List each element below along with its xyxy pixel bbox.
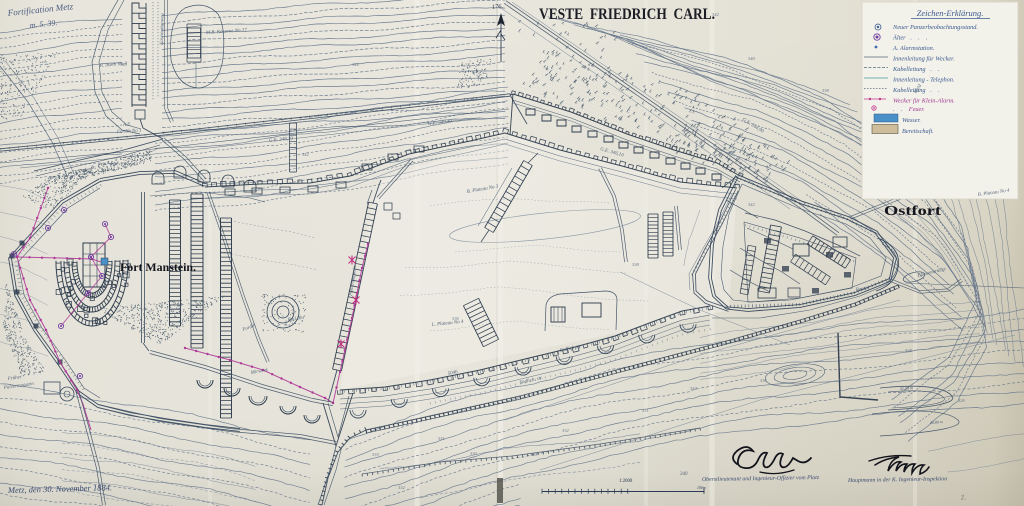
svg-text:336: 336 [452, 316, 460, 321]
svg-text:A. Alarmstation.: A. Alarmstation. [892, 45, 934, 52]
svg-text:332: 332 [562, 428, 570, 433]
svg-text:334: 334 [690, 386, 698, 391]
svg-text:VESTE FRIEDRICH CARL.: VESTE FRIEDRICH CARL. [539, 6, 715, 23]
svg-text:Innenleitung für Wecker.: Innenleitung für Wecker. [892, 56, 955, 63]
svg-text:338: 338 [822, 88, 830, 93]
svg-text:326: 326 [958, 398, 966, 403]
svg-text:331: 331 [438, 436, 445, 441]
svg-text:Fort Manstein.: Fort Manstein. [120, 262, 196, 274]
svg-text:342: 342 [748, 202, 756, 207]
svg-text:344: 344 [352, 62, 360, 67]
svg-text:. . Feuer.: . . Feuer. [893, 106, 925, 113]
svg-text:Kabelleitung . .: Kabelleitung . . [892, 66, 940, 73]
svg-text:176.: 176. [491, 3, 503, 11]
svg-text:Zeichen-Erklärung.: Zeichen-Erklärung. [917, 8, 984, 18]
svg-text:338: 338 [632, 262, 640, 267]
svg-text:333: 333 [372, 452, 380, 457]
svg-text:342: 342 [712, 12, 720, 17]
svg-text:340: 340 [680, 472, 688, 477]
svg-text:340: 340 [120, 62, 128, 67]
svg-text:Kasemattenweg: Kasemattenweg [160, 13, 166, 46]
svg-text:Älter . . .: Älter . . . [892, 35, 928, 42]
svg-text:Innenleitung - Telephon.: Innenleitung - Telephon. [892, 77, 955, 84]
svg-text:Wasser.: Wasser. [902, 117, 921, 124]
svg-text:331: 331 [642, 408, 649, 413]
svg-text:342: 342 [302, 152, 310, 157]
svg-text:332: 332 [398, 485, 406, 490]
svg-text:100m: 100m [697, 486, 706, 490]
svg-text:328: 328 [905, 348, 913, 353]
svg-text:Ostfort: Ostfort [884, 203, 942, 218]
svg-text:340: 340 [748, 56, 756, 61]
svg-text:A.E.: A.E. [122, 123, 132, 128]
svg-text:330: 330 [470, 451, 478, 456]
svg-text:330: 330 [530, 452, 538, 457]
svg-text:Wecker für Klein-Alarm.: Wecker für Klein-Alarm. [893, 98, 955, 105]
svg-text:Neuer Panzerbeobachtungsstand.: Neuer Panzerbeobachtungsstand. [892, 24, 978, 31]
svg-text:1:2000: 1:2000 [619, 479, 633, 484]
svg-text:336: 336 [760, 378, 768, 383]
svg-text:Bereitschaft.: Bereitschaft. [902, 128, 934, 135]
